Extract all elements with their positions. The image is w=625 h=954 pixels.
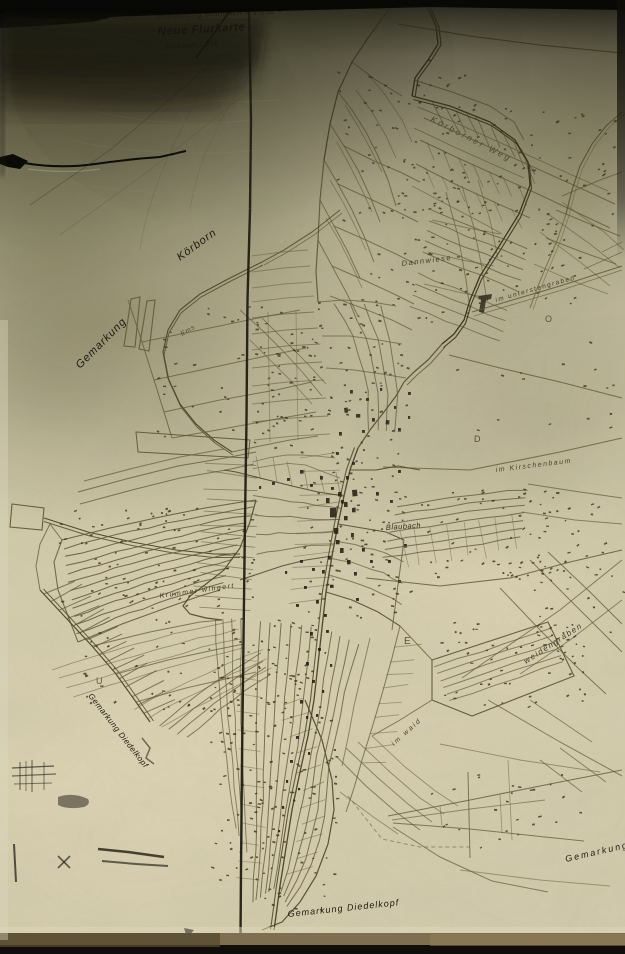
- svg-text:U: U: [96, 676, 103, 686]
- svg-text:E: E: [404, 636, 411, 647]
